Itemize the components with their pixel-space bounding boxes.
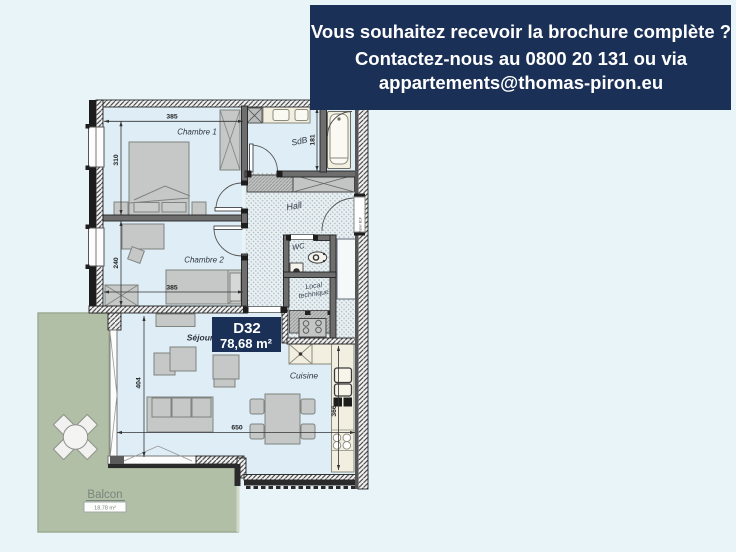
svg-text:310: 310 — [113, 154, 120, 166]
svg-text:385: 385 — [166, 114, 178, 121]
svg-text:385: 385 — [166, 285, 178, 292]
svg-text:D32: D32 — [233, 320, 261, 337]
svg-text:Cuisine: Cuisine — [290, 371, 319, 381]
svg-text:Séjour: Séjour — [187, 333, 214, 343]
svg-text:181: 181 — [310, 134, 317, 146]
svg-text:Vous souhaitez recevoir la bro: Vous souhaitez recevoir la brochure comp… — [311, 21, 731, 42]
svg-text:366: 366 — [331, 405, 338, 417]
svg-text:650: 650 — [231, 425, 243, 432]
svg-text:Chambre 1: Chambre 1 — [177, 128, 217, 137]
svg-text:240: 240 — [113, 257, 120, 269]
svg-text:Contactez-nous au 0800 20 131: Contactez-nous au 0800 20 131 ou via — [355, 48, 688, 69]
svg-text:78,68 m²: 78,68 m² — [220, 336, 273, 351]
svg-text:18.78 m²: 18.78 m² — [94, 506, 116, 512]
svg-text:appartements@thomas-piron.eu: appartements@thomas-piron.eu — [379, 72, 663, 93]
svg-text:Chambre 2: Chambre 2 — [184, 256, 224, 265]
svg-text:404: 404 — [136, 377, 143, 389]
svg-text:Palier B1F: Palier B1F — [359, 217, 363, 233]
svg-text:Balcon: Balcon — [87, 489, 122, 501]
